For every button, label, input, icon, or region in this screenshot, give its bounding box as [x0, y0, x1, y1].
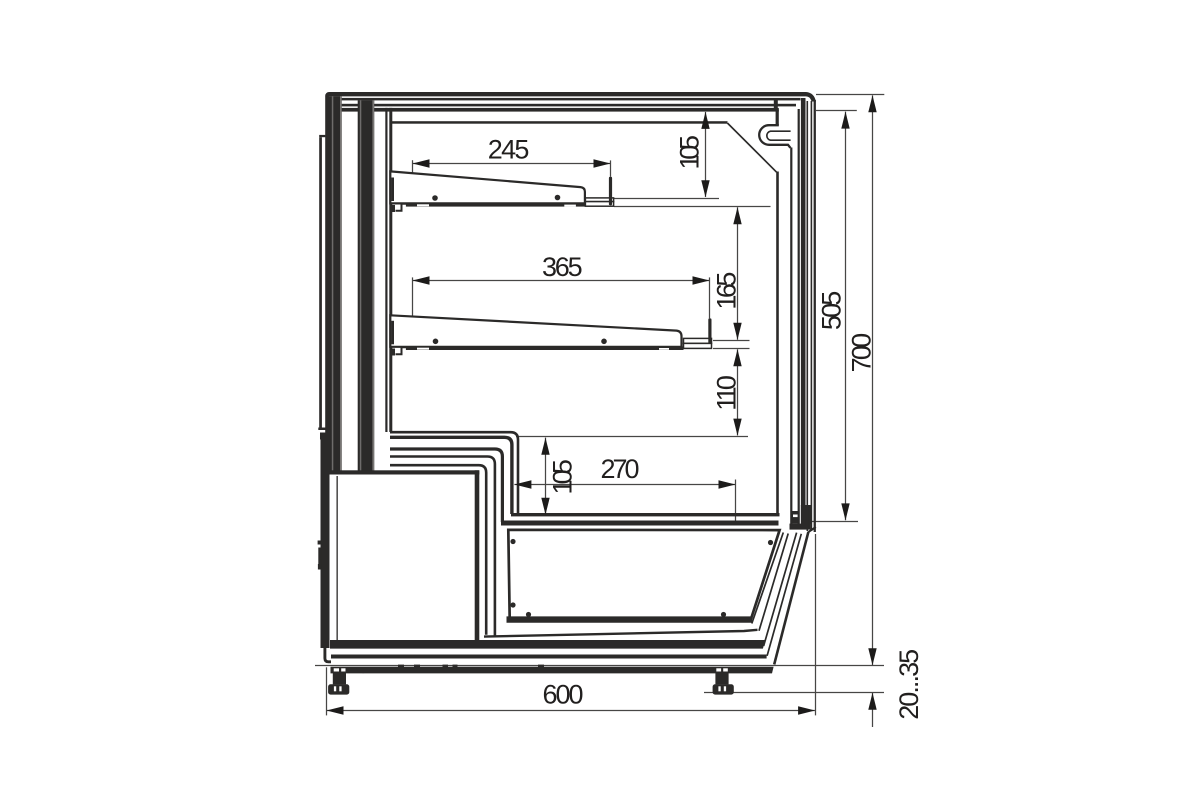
svg-text:105: 105 [674, 135, 704, 170]
svg-text:270: 270 [601, 454, 640, 484]
svg-text:105: 105 [547, 459, 577, 495]
svg-text:600: 600 [543, 680, 584, 710]
svg-text:700: 700 [847, 333, 877, 373]
svg-text:245: 245 [488, 135, 530, 165]
svg-text:165: 165 [711, 272, 741, 310]
svg-text:365: 365 [542, 252, 583, 282]
svg-text:110: 110 [711, 375, 741, 411]
svg-text:20...35: 20...35 [894, 649, 924, 720]
svg-text:505: 505 [817, 291, 847, 330]
